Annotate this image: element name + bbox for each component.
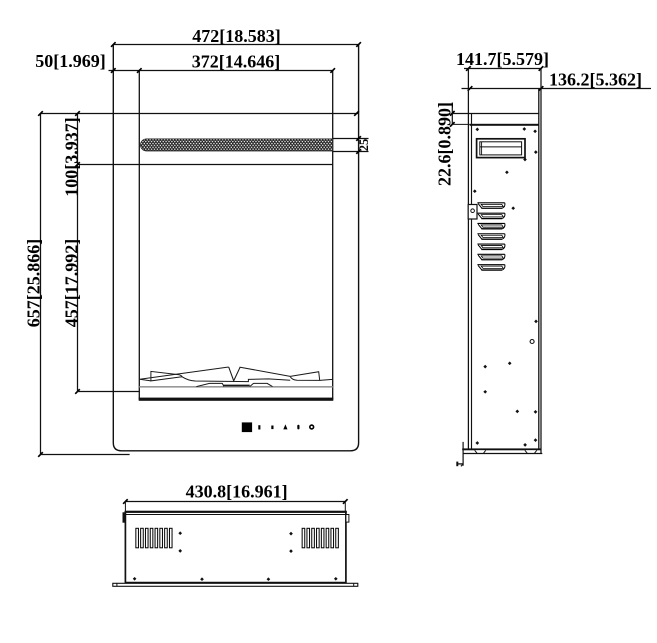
svg-text:136.2[5.362]: 136.2[5.362]	[549, 70, 642, 90]
svg-text:372[14.646]: 372[14.646]	[192, 51, 281, 71]
svg-text:141.7[5.579]: 141.7[5.579]	[456, 49, 549, 69]
svg-text:25: 25	[357, 139, 371, 152]
svg-text:50[1.969]: 50[1.969]	[35, 51, 106, 71]
svg-text:100[3.937]: 100[3.937]	[62, 117, 82, 197]
svg-text:657[25.866]: 657[25.866]	[24, 239, 44, 328]
svg-text:22.6[0.890]: 22.6[0.890]	[434, 102, 454, 186]
svg-text:430.8[16.961]: 430.8[16.961]	[186, 482, 288, 502]
svg-text:457[17.992]: 457[17.992]	[62, 239, 82, 328]
svg-text:472[18.583]: 472[18.583]	[192, 26, 281, 46]
